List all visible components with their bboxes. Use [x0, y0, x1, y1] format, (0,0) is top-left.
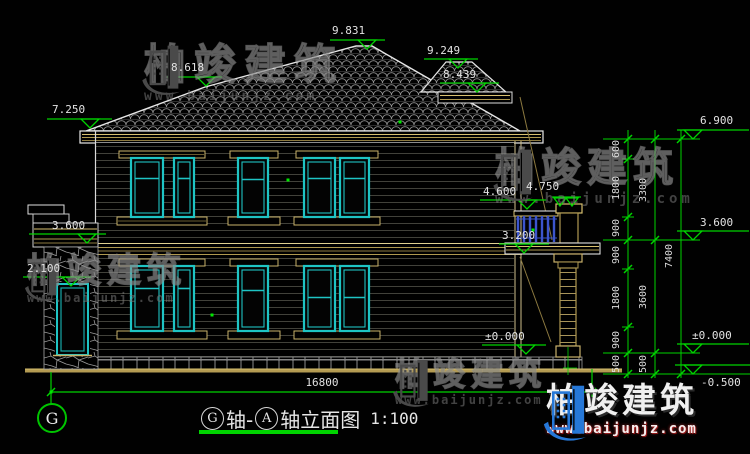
axis-circle-g: G [201, 407, 224, 430]
dim-seg: 500 [639, 355, 649, 373]
dim-seg: 500 [612, 355, 622, 373]
main-eave-fascia [80, 131, 543, 143]
dim-seg: 1800 [612, 286, 622, 310]
title-underline [199, 430, 338, 434]
title-text: 轴- [226, 404, 253, 433]
title-text: 轴立面图 [280, 404, 360, 433]
elev-right-site: -0.500 [701, 377, 741, 388]
ground-line [25, 369, 622, 373]
elev-right-floor2: 3.600 [700, 217, 733, 228]
elev-secondary-ridge: 9.249 [427, 45, 460, 56]
elev-right-eave: 6.900 [700, 115, 733, 126]
elev-door-head: 2.100 [27, 263, 60, 274]
window-2f-left [117, 151, 207, 225]
dim-seg: 900 [612, 331, 622, 349]
window-1f-left [117, 259, 207, 339]
elev-left-eave: 7.250 [52, 104, 85, 115]
elev-left-ridge: 8.618 [171, 62, 204, 73]
axis-bubble-g: G [37, 403, 67, 433]
elev-wing-roof: 3.600 [52, 220, 85, 231]
elev-right-ground: ±0.000 [692, 330, 732, 341]
dim-seg: 600 [612, 140, 622, 158]
elev-pillar-top: 4.750 [526, 181, 559, 192]
dim-seg: 900 [612, 246, 622, 264]
company-logo-icon [541, 384, 593, 444]
elev-secondary-eave: 8.439 [443, 69, 476, 80]
elev-main-ridge: 9.831 [332, 25, 365, 36]
elev-balcony-rail: 4.600 [483, 186, 516, 197]
dim-seg: 900 [612, 219, 622, 237]
dim-seg: 7400 [665, 244, 675, 268]
floor-band [95, 243, 522, 255]
elev-balcony-floor: 3.200 [502, 230, 535, 241]
dim-seg: 3300 [639, 178, 649, 202]
porch-column [520, 254, 582, 357]
elev-ground-floor: ±0.000 [485, 331, 525, 342]
title-scale: 1:100 [370, 409, 418, 428]
axis-bubble-label: G [46, 409, 59, 428]
entry-door [53, 284, 92, 356]
axis-circle-a: A [255, 407, 278, 430]
dim-seg: 1800 [612, 176, 622, 200]
elevation-drawing-page: 9.831 8.618 7.250 9.249 8.439 3.600 2.10… [0, 0, 750, 454]
dim-total-width: 16800 [305, 377, 338, 388]
drawing-title: G轴-A轴立面图1:100 [199, 404, 418, 433]
dim-seg: 3600 [639, 285, 649, 309]
company-logo: 柏竣建筑 www.baijunjz.com [541, 384, 698, 437]
plinth [93, 357, 582, 369]
